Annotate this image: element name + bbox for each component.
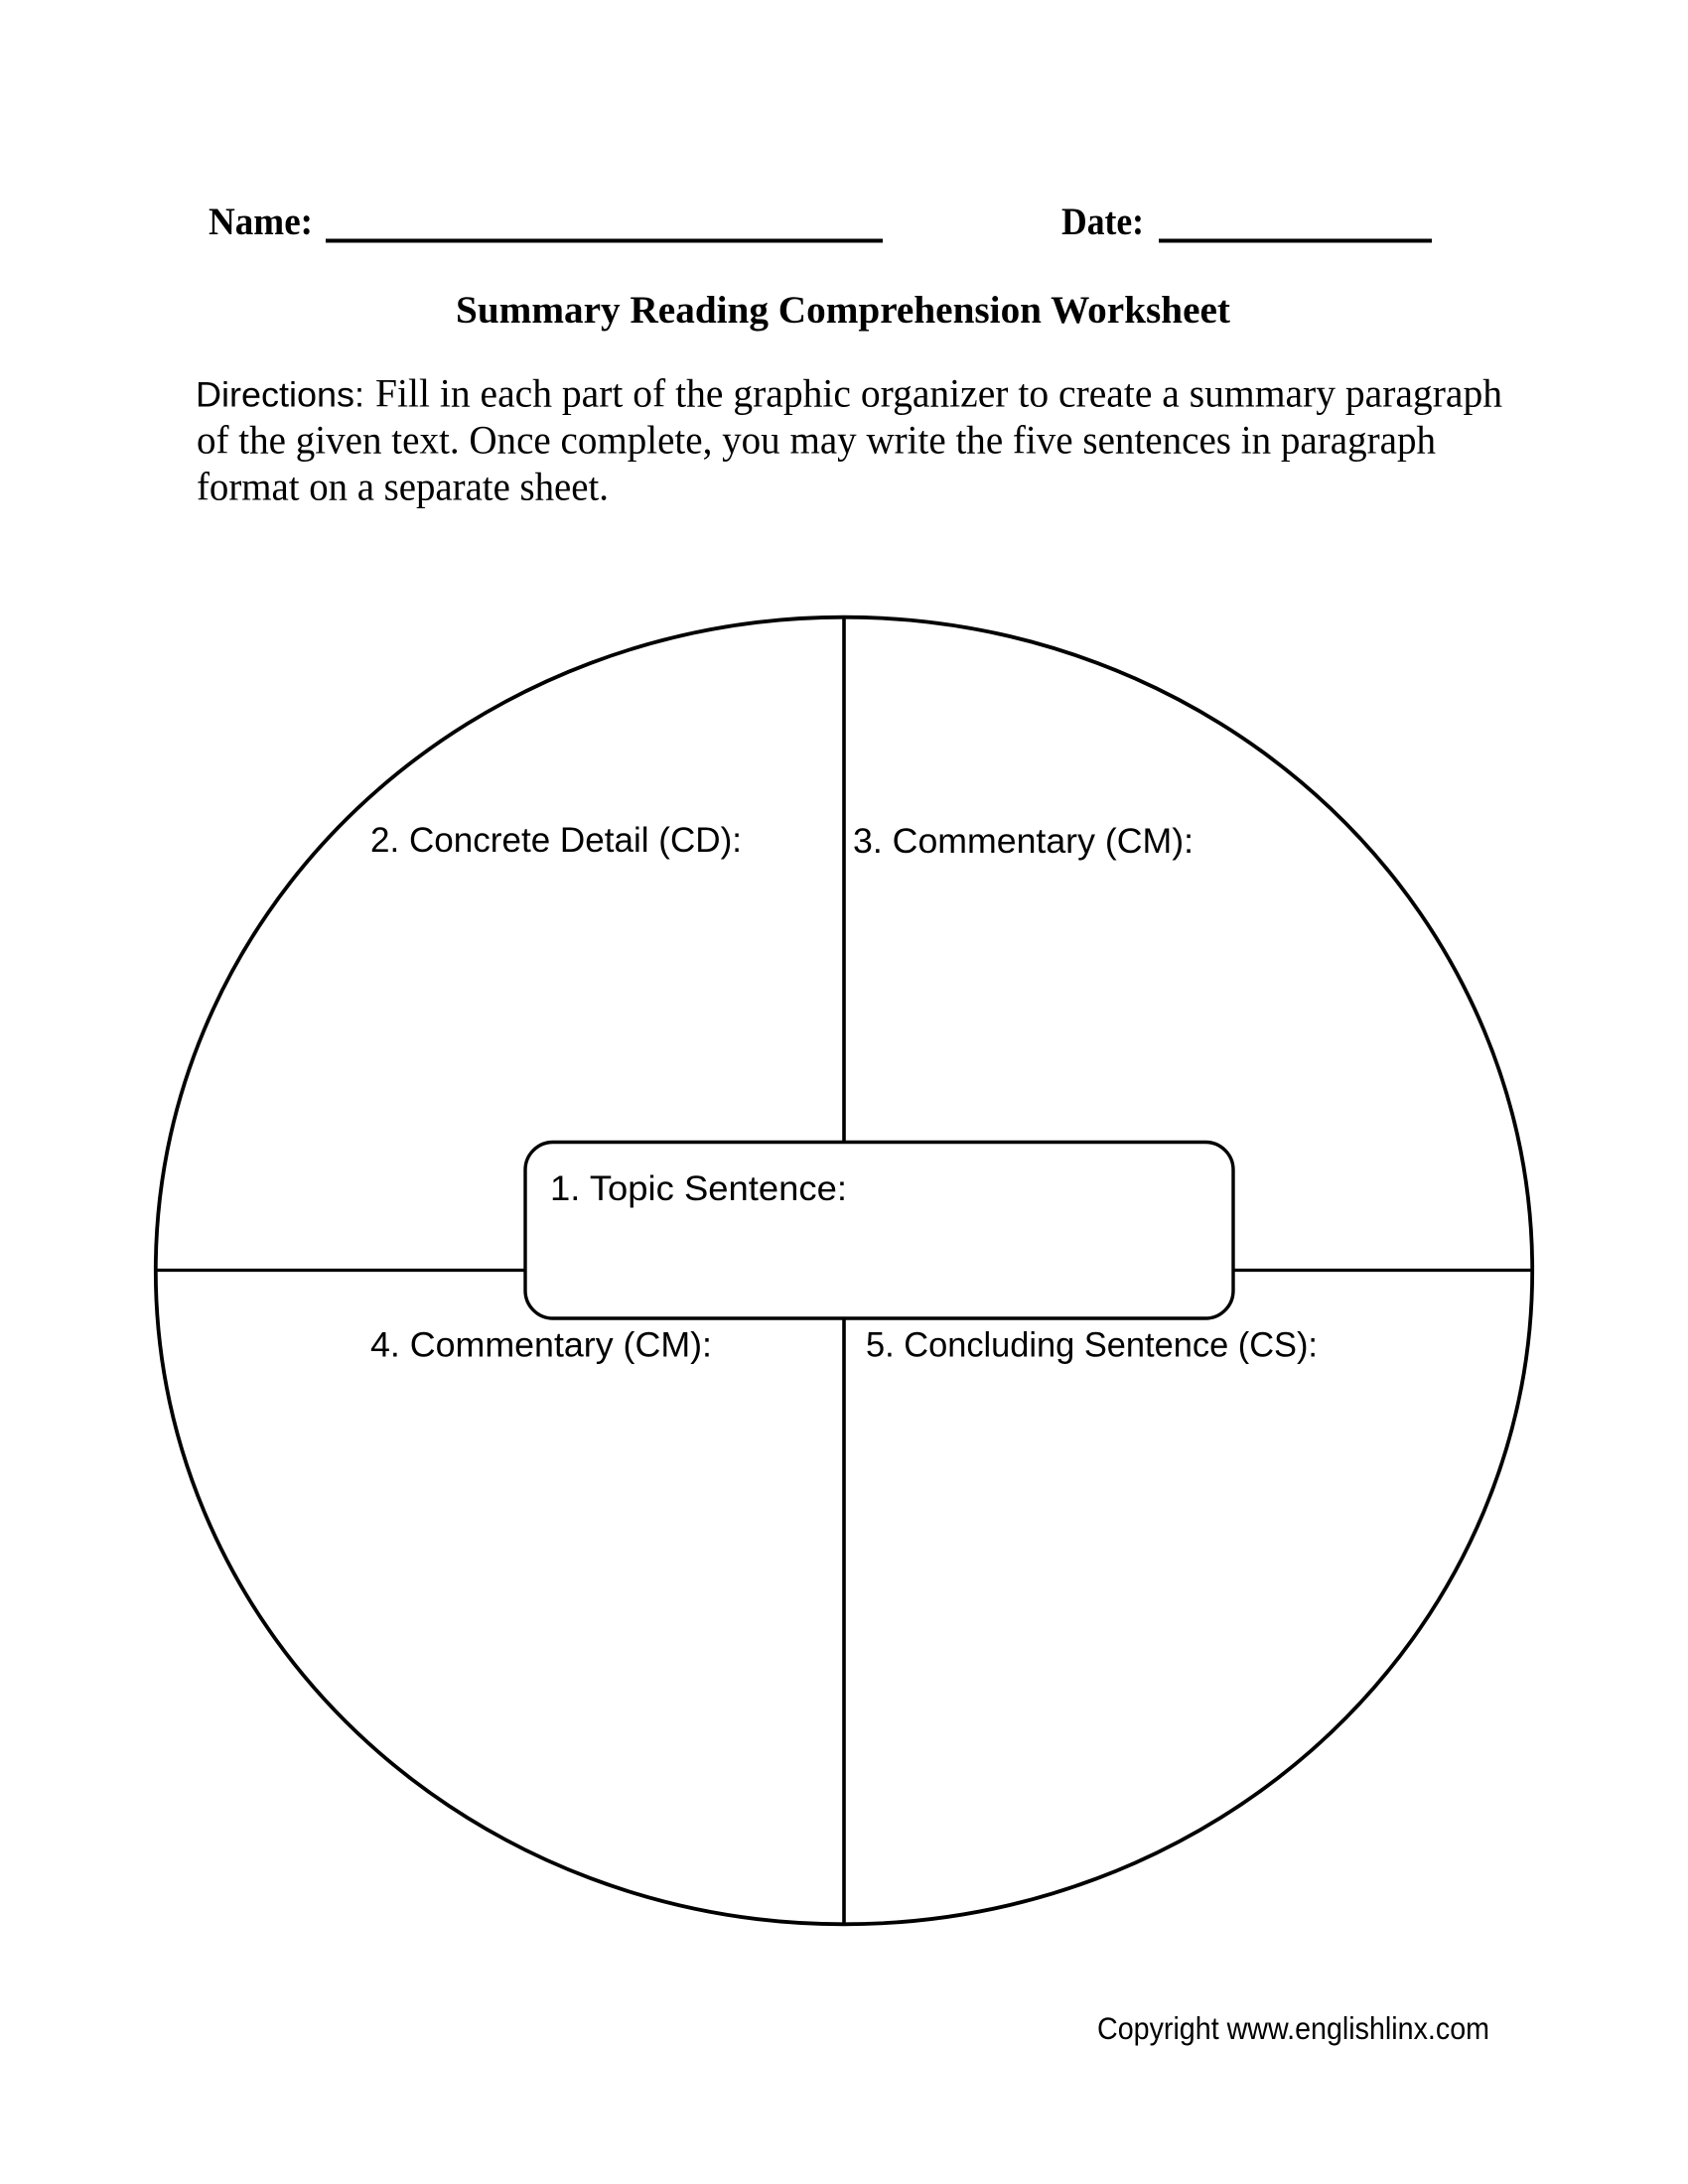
svg-text:5. Concluding Sentence (CS):: 5. Concluding Sentence (CS): [866, 1326, 1318, 1365]
svg-text:Summary Reading Comprehension: Summary Reading Comprehension Worksheet [456, 289, 1230, 332]
svg-text:Date:: Date: [1061, 201, 1144, 243]
svg-text:Copyright www.englishlinx.com: Copyright www.englishlinx.com [1097, 2010, 1489, 2046]
svg-text:Fill in each part of the graph: Fill in each part of the graphic organiz… [375, 371, 1502, 416]
svg-text:2. Concrete Detail (CD):: 2. Concrete Detail (CD): [370, 821, 742, 860]
svg-text:Directions:: Directions: [196, 376, 364, 415]
svg-text:3. Commentary (CM):: 3. Commentary (CM): [853, 822, 1194, 861]
svg-text:of the given text. Once comple: of the given text. Once complete, you ma… [197, 418, 1436, 463]
svg-text:Name:: Name: [209, 201, 313, 243]
svg-text:4. Commentary (CM):: 4. Commentary (CM): [370, 1326, 712, 1365]
svg-text:format on a separate sheet.: format on a separate sheet. [197, 465, 609, 509]
svg-text:1. Topic Sentence:: 1. Topic Sentence: [550, 1169, 847, 1208]
